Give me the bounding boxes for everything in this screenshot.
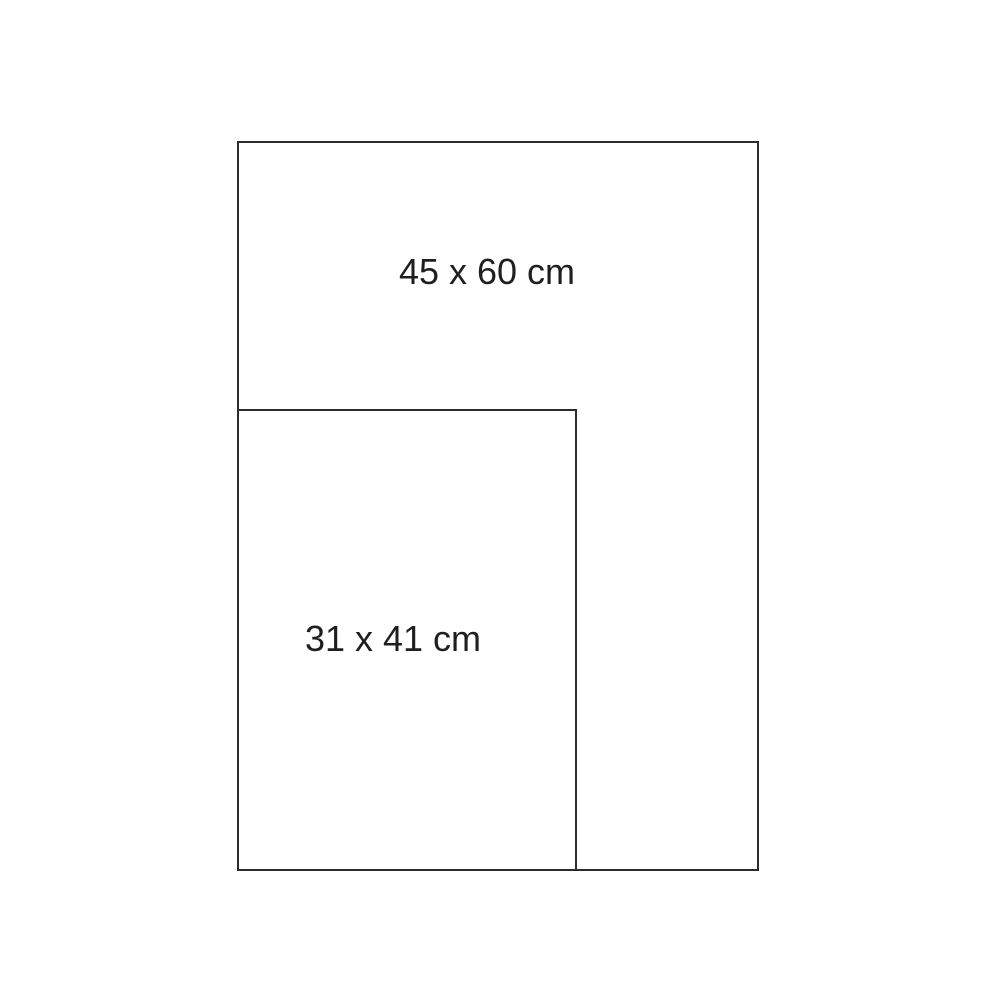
small-size-label: 31 x 41 cm — [305, 621, 481, 657]
size-comparison-diagram: 45 x 60 cm 31 x 41 cm — [0, 0, 1000, 1000]
large-size-label: 45 x 60 cm — [399, 254, 575, 290]
